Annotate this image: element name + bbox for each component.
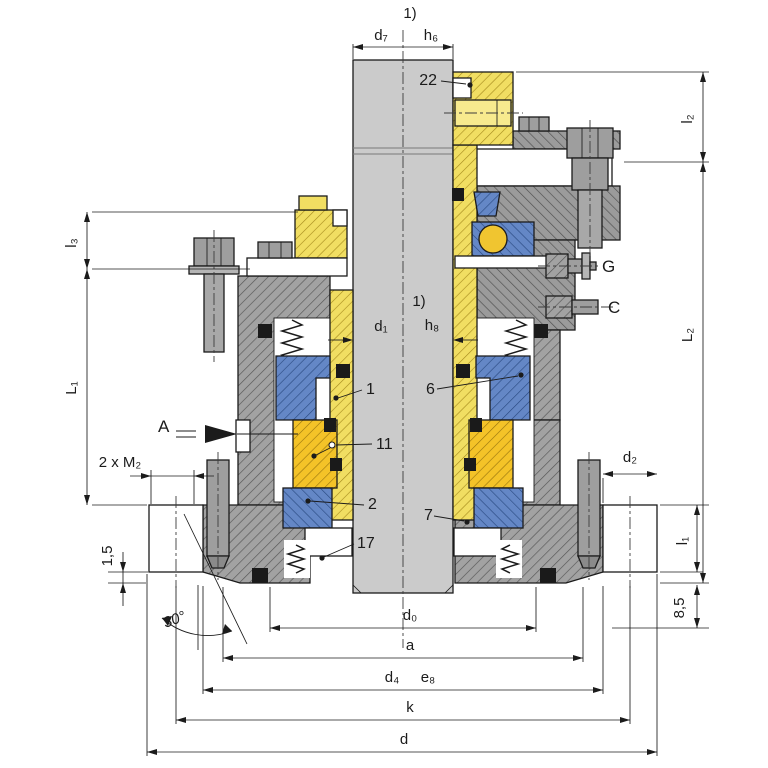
dim-label-L1: L₁ bbox=[63, 381, 80, 394]
dim-label-h8: h₈ bbox=[425, 317, 440, 334]
oring bbox=[330, 458, 342, 471]
dim-label-l1: l₁ bbox=[674, 537, 691, 545]
dim-label-e8: e₈ bbox=[421, 669, 436, 686]
dim-label-k: k bbox=[406, 699, 414, 716]
right-housing-assembly bbox=[452, 117, 657, 583]
part-label-2: 2 bbox=[368, 496, 377, 513]
part-label-7: 7 bbox=[424, 507, 433, 524]
left-gland-plate bbox=[247, 258, 347, 276]
part-label-11: 11 bbox=[376, 436, 393, 453]
oring bbox=[258, 324, 272, 338]
dim-label-d0: d₀ bbox=[403, 607, 418, 624]
flush-port bbox=[236, 420, 250, 452]
dim-label-l2: l₂ bbox=[679, 114, 696, 123]
dim-label-h6: h₆ bbox=[424, 27, 438, 44]
seal-drawing: 1) d₇ h₆ 1) d₁ h₈ l₃ L₁ 2 x M₂ 1,5 30° l… bbox=[0, 0, 768, 768]
part-label-22: 22 bbox=[419, 72, 437, 89]
oring bbox=[534, 324, 548, 338]
oring bbox=[456, 364, 470, 378]
oring bbox=[470, 418, 482, 432]
left-small-bolt bbox=[258, 242, 292, 258]
dim-label-step: 1,5 bbox=[99, 546, 116, 567]
drive-collar bbox=[474, 192, 500, 216]
dim-label-m2: 2 x M₂ bbox=[99, 454, 142, 471]
dim-label-d4: d₄ bbox=[385, 669, 399, 686]
dim-label-angle: 30° bbox=[161, 608, 188, 632]
drawing-canvas: 1) d₇ h₆ 1) d₁ h₈ l₃ L₁ 2 x M₂ 1,5 30° l… bbox=[0, 0, 768, 768]
port-label-g: G bbox=[602, 257, 615, 276]
right-small-bolt bbox=[519, 117, 549, 131]
dim-label-offset: 8,5 bbox=[671, 598, 688, 619]
dim-label-d7: d₇ bbox=[374, 27, 388, 44]
footnote-top: 1) bbox=[403, 5, 416, 22]
bearing-ball bbox=[479, 225, 507, 253]
oring bbox=[464, 458, 476, 471]
view-label-a: A bbox=[158, 417, 170, 436]
seal-ring-right-lower bbox=[474, 488, 523, 528]
dim-label-d2: d₂ bbox=[623, 449, 637, 466]
clamp-collar bbox=[453, 72, 513, 145]
part-label-6: 6 bbox=[426, 381, 435, 398]
part-label-17: 17 bbox=[357, 535, 375, 552]
dim-label-d1: d₁ bbox=[374, 318, 387, 335]
seal-ring-left-lower bbox=[283, 488, 332, 528]
port-label-c: C bbox=[608, 298, 620, 317]
footnote-mid: 1) bbox=[412, 293, 425, 310]
dim-label-L2: L₂ bbox=[679, 328, 696, 342]
oring bbox=[336, 364, 350, 378]
gland-screw bbox=[299, 196, 327, 210]
oring bbox=[252, 568, 268, 583]
oring bbox=[452, 188, 464, 201]
dim-label-l3: l₃ bbox=[63, 238, 80, 247]
dim-label-a: a bbox=[406, 637, 415, 654]
part-label-1: 1 bbox=[366, 381, 375, 398]
oring bbox=[540, 568, 556, 583]
oring bbox=[324, 418, 336, 432]
dim-label-d: d bbox=[400, 731, 408, 748]
left-housing-assembly bbox=[149, 196, 353, 583]
